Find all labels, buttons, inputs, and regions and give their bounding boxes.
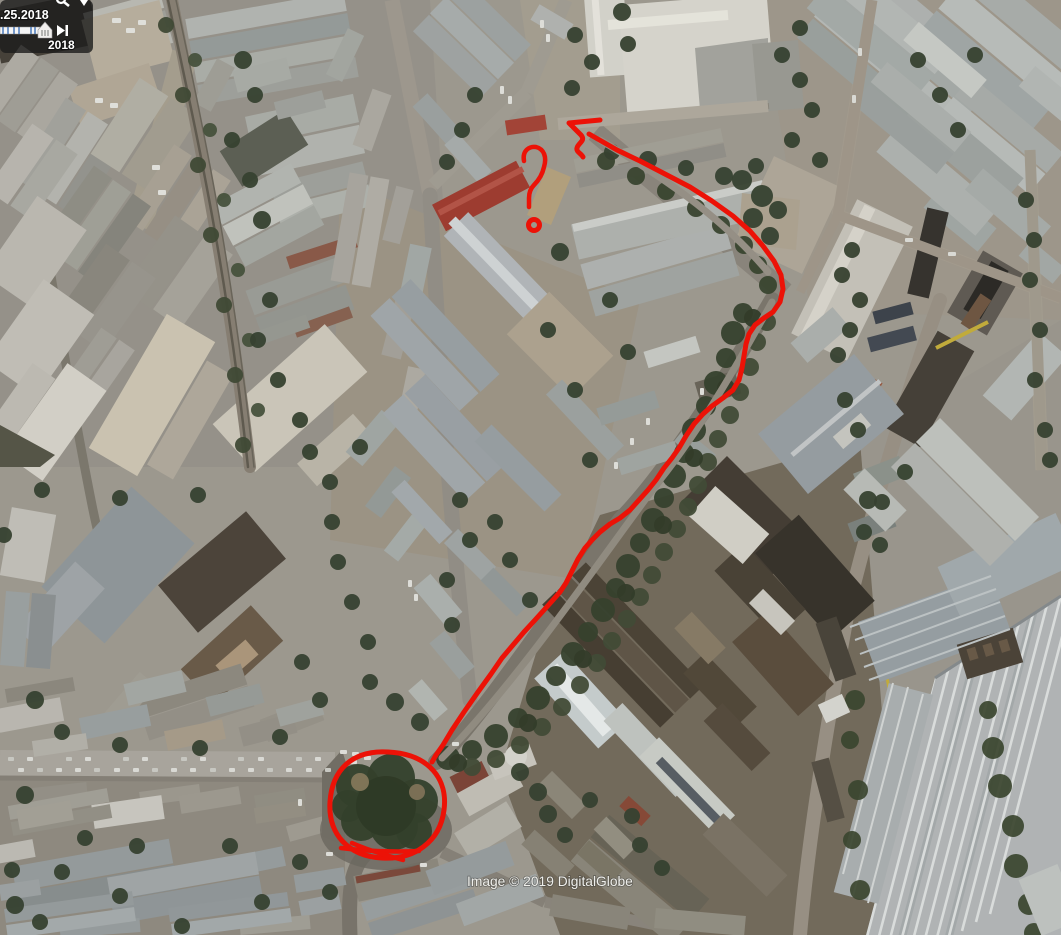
svg-text:.25.2018: .25.2018 [0,8,49,22]
svg-text:2018: 2018 [48,38,75,52]
svg-text:Image © 2019 DigitalGlobe: Image © 2019 DigitalGlobe [467,874,633,889]
